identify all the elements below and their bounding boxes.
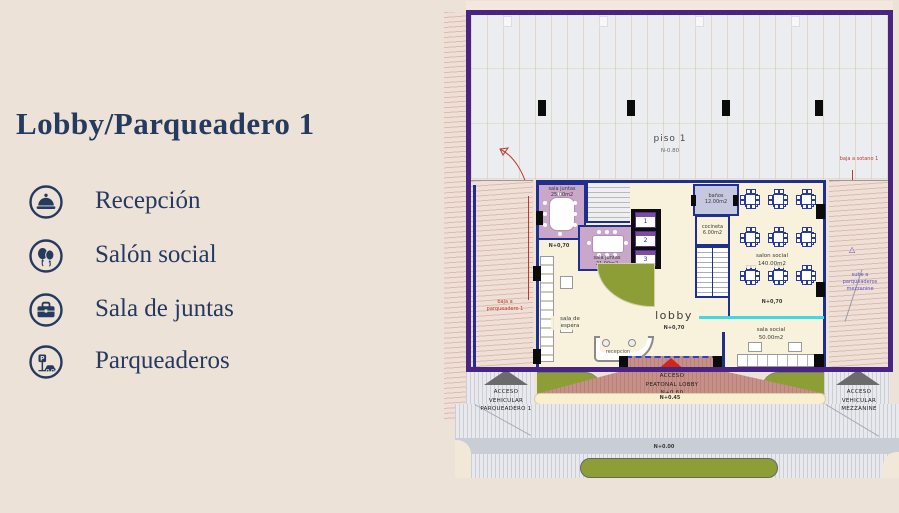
plan-paper-top — [466, 1, 893, 10]
curb-right — [883, 452, 899, 478]
acceso-vp-line2: VEHICULAR — [466, 397, 546, 406]
sidewalk-level: N+0.45 — [648, 395, 692, 401]
acceso-vehicular-parqueadero-arrow — [484, 370, 528, 385]
acceso-vehicular-mezzanine-arrow — [836, 370, 880, 385]
acceso-vehicular-mezzanine-block: ACCESO VEHICULAR MEZZANINE — [824, 388, 894, 414]
acceso-peatonal-line2: PEATONAL LOBBY — [624, 381, 720, 390]
curb-left — [455, 440, 471, 478]
acceso-vm-line1: ACCESO — [824, 388, 894, 397]
acceso-vp-line1: ACCESO — [466, 388, 546, 397]
floor-plan: piso 1 N-0.80 baja a sotano 1 baja a par… — [0, 0, 899, 513]
street-median-green — [580, 458, 778, 478]
plan-border — [466, 10, 893, 372]
acceso-peatonal-line1: ACCESO — [624, 372, 720, 381]
acceso-vm-line3: MEZZANINE — [824, 405, 894, 414]
site-strip-left — [444, 12, 466, 420]
acceso-vp-line3: PARQUEADERO 1 — [466, 405, 546, 414]
acceso-vm-line2: VEHICULAR — [824, 397, 894, 406]
acceso-vehicular-parqueadero-block: ACCESO VEHICULAR PARQUEADERO 1 — [466, 388, 546, 414]
street-level: N+0.00 — [640, 444, 688, 450]
